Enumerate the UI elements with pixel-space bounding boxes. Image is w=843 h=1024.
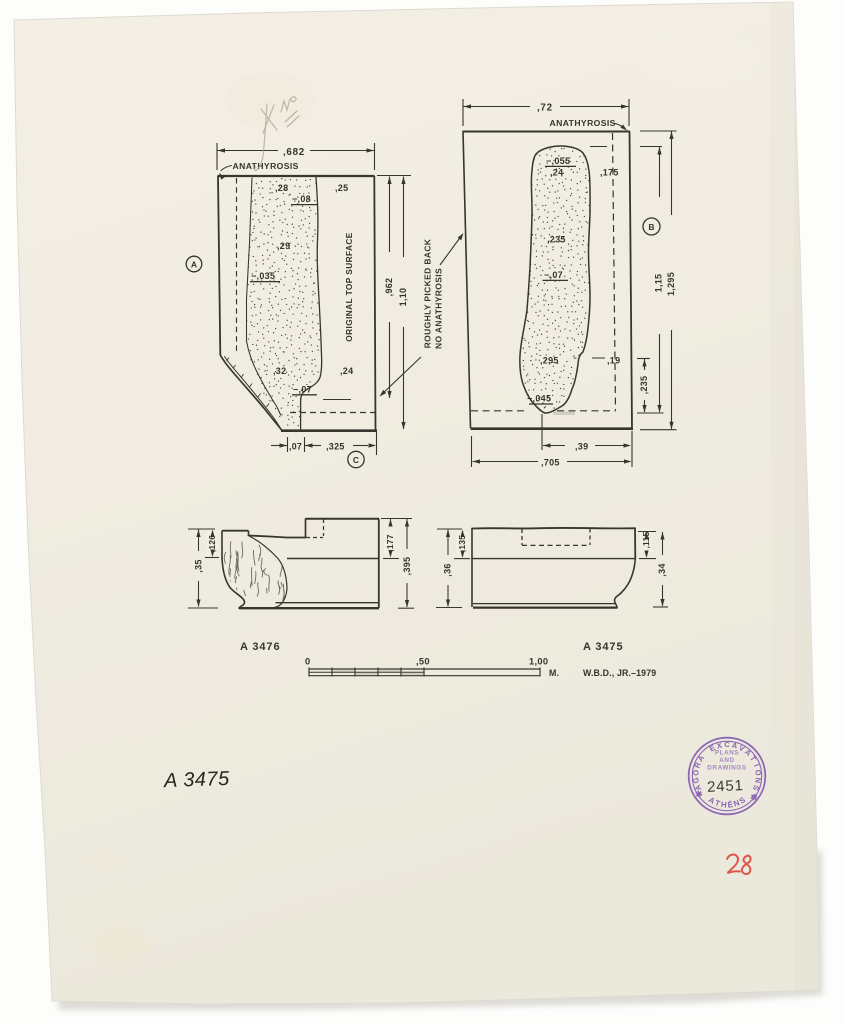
- svg-text:,36: ,36: [443, 563, 453, 576]
- svg-text:,175: ,175: [600, 168, 619, 178]
- svg-text:,24: ,24: [550, 168, 563, 178]
- svg-text:,19: ,19: [607, 356, 620, 366]
- svg-text:,115: ,115: [641, 531, 651, 548]
- svg-text:ORIGINAL TOP SURFACE: ORIGINAL TOP SURFACE: [344, 232, 354, 341]
- svg-text:A 3476: A 3476: [240, 641, 280, 653]
- svg-text:ANATHYROSIS: ANATHYROSIS: [233, 161, 299, 171]
- svg-text:,72: ,72: [537, 103, 553, 114]
- svg-text:−,07: −,07: [293, 385, 312, 395]
- svg-text:ROUGHLY PICKED BACK: ROUGHLY PICKED BACK: [423, 238, 433, 348]
- svg-text:A 3475: A 3475: [583, 641, 623, 653]
- svg-text:,25: ,25: [335, 183, 348, 193]
- svg-text:,235: ,235: [547, 235, 566, 245]
- svg-text:C: C: [353, 455, 359, 465]
- svg-text:−,07: −,07: [544, 270, 563, 280]
- svg-text:,07: ,07: [289, 442, 302, 452]
- svg-text:,395: ,395: [402, 557, 412, 576]
- svg-text:AND: AND: [719, 757, 734, 764]
- svg-text:1,00: 1,00: [529, 657, 548, 667]
- svg-text:,705: ,705: [541, 458, 560, 468]
- svg-text:,35: ,35: [194, 559, 204, 572]
- svg-text:,34: ,34: [657, 563, 667, 576]
- svg-text:NO ANATHYROSIS: NO ANATHYROSIS: [434, 268, 444, 349]
- svg-text:1,10: 1,10: [398, 288, 408, 307]
- svg-text:−,035: −,035: [251, 271, 275, 281]
- svg-text:−,08: −,08: [292, 194, 311, 204]
- svg-text:,29: ,29: [277, 241, 290, 251]
- svg-text:,28: ,28: [275, 183, 288, 193]
- svg-text:,962: ,962: [384, 278, 394, 297]
- svg-text:,50: ,50: [416, 657, 430, 667]
- svg-text:0: 0: [305, 657, 310, 667]
- svg-text:A 3475: A 3475: [163, 768, 231, 792]
- svg-text:,39: ,39: [575, 442, 588, 452]
- svg-text:DRAWINGS: DRAWINGS: [707, 765, 746, 772]
- svg-text:,682: ,682: [283, 147, 305, 158]
- svg-text:,177: ,177: [385, 534, 395, 552]
- svg-text:2451: 2451: [707, 777, 744, 796]
- svg-text:−,045: −,045: [527, 394, 551, 404]
- svg-text:,32: ,32: [273, 366, 286, 376]
- svg-text:1,15: 1,15: [654, 274, 664, 293]
- svg-text:−,055: −,055: [546, 156, 570, 166]
- svg-text:,24: ,24: [340, 366, 353, 376]
- svg-text:,325: ,325: [326, 442, 345, 452]
- svg-text:1,295: 1,295: [666, 272, 676, 296]
- svg-text:,135: ,135: [457, 535, 467, 553]
- svg-text:A: A: [191, 259, 197, 269]
- svg-text:,235: ,235: [639, 376, 649, 395]
- svg-text:B: B: [648, 222, 654, 232]
- svg-text:,126: ,126: [207, 535, 217, 553]
- svg-text:O: O: [753, 769, 763, 776]
- svg-text:C: C: [724, 740, 730, 749]
- svg-text:,295: ,295: [540, 356, 559, 366]
- svg-text:M.: M.: [549, 668, 559, 678]
- svg-text:ANATHYROSIS: ANATHYROSIS: [550, 118, 616, 128]
- svg-text:O: O: [691, 769, 701, 776]
- svg-text:PLANS: PLANS: [715, 750, 739, 757]
- svg-text:W.B.D., JR.–1979: W.B.D., JR.–1979: [583, 668, 656, 678]
